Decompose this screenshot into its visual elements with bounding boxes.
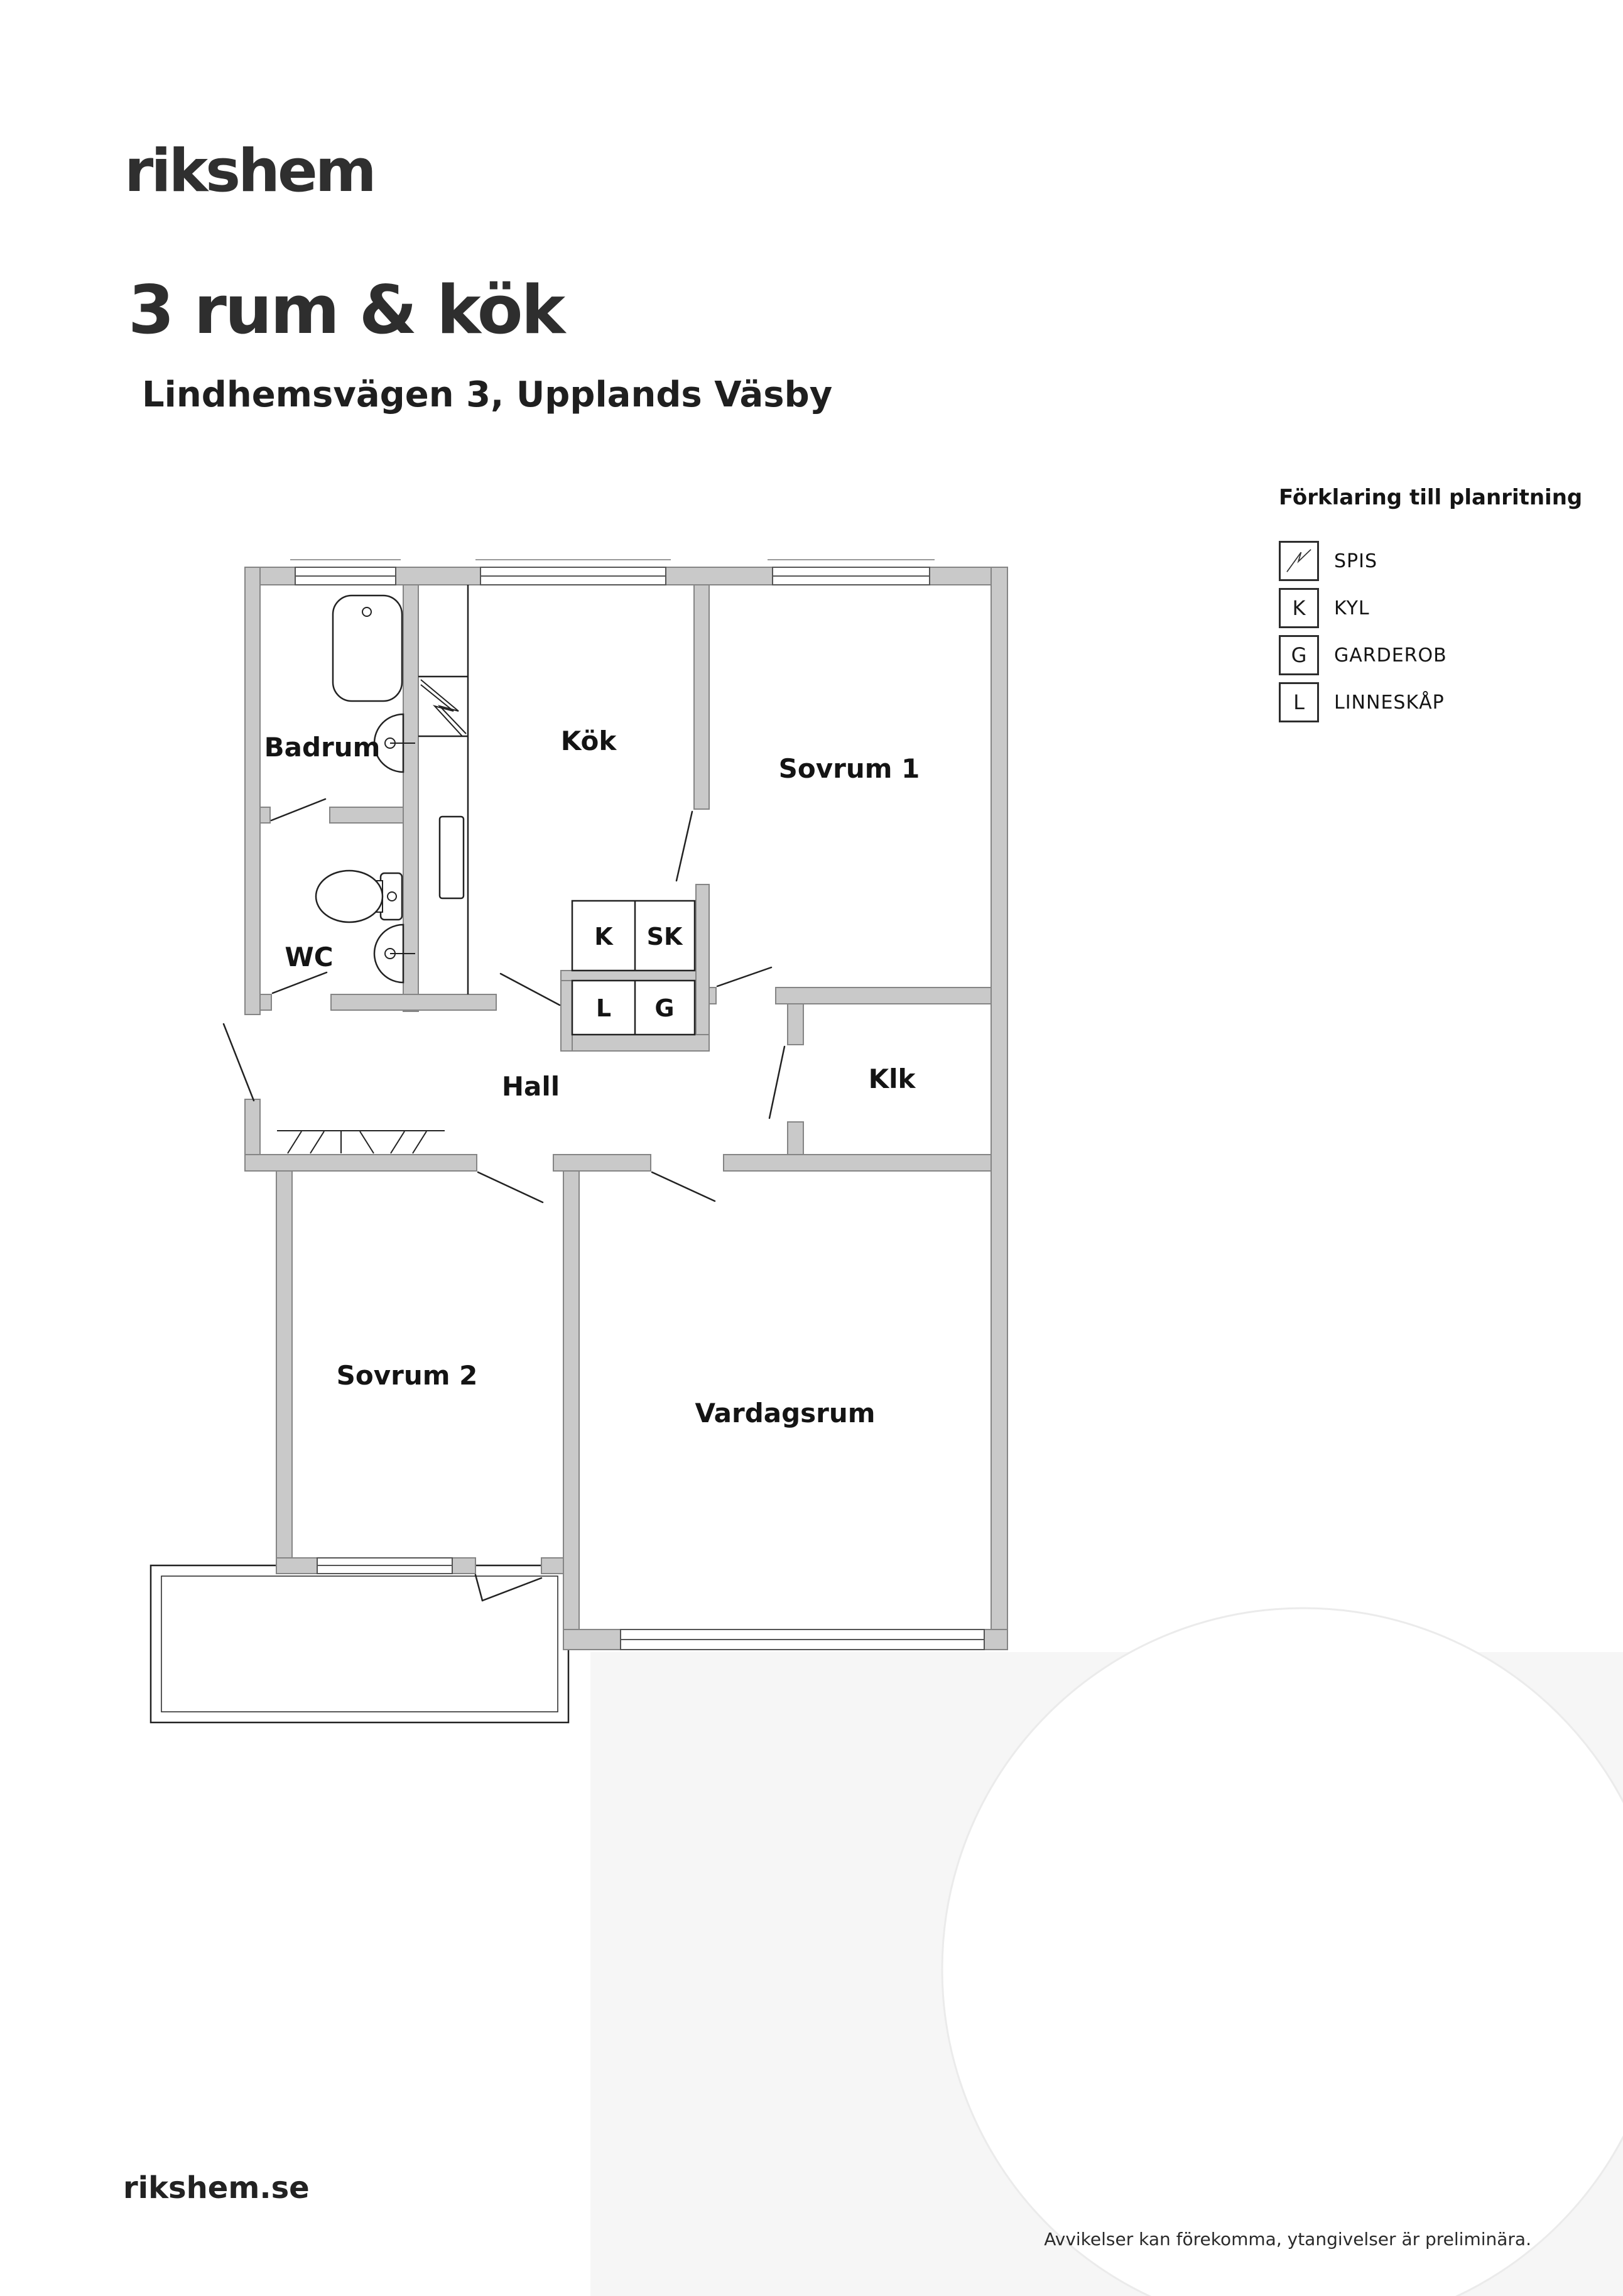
- legend-label-linneskap: LINNESKÅP: [1334, 692, 1445, 714]
- balcony: [151, 1565, 568, 1722]
- legend-row-kyl: K KYL: [1279, 589, 1605, 628]
- legend-letter-k: K: [1279, 588, 1319, 628]
- room-labels: Badrum WC Kök Sovrum 1 Hall Klk Sovrum 2…: [264, 726, 920, 1428]
- stair-hatch-line: [310, 1131, 324, 1153]
- stair-hatch-line: [288, 1131, 301, 1153]
- sovrum2-door-leaf: [478, 1172, 543, 1202]
- spis-zigzag-icon: [1283, 545, 1315, 577]
- legend-label-kyl: KYL: [1334, 597, 1370, 619]
- legend-row-linneskap: L LINNESKÅP: [1279, 683, 1605, 722]
- wall-segment: [776, 987, 991, 1004]
- wall-segment: [788, 1004, 803, 1045]
- legend-label-spis: SPIS: [1334, 550, 1377, 572]
- page-subtitle: Lindhemsvägen 3, Upplands Väsby: [142, 374, 832, 415]
- stove-symbol: [421, 680, 466, 736]
- background-wash: [590, 1608, 1623, 2296]
- wall-segment: [694, 585, 709, 809]
- stair-hatch-line: [391, 1131, 404, 1153]
- wall-segment: [245, 1155, 477, 1171]
- closet-label-k: K: [594, 923, 614, 950]
- wall-segment: [276, 1171, 292, 1574]
- vardagsrum-door-leaf: [652, 1172, 715, 1201]
- legend-letter-l: L: [1279, 682, 1319, 722]
- stair-hatch: [277, 1131, 445, 1153]
- floorplan-document-page: Badrum WC Kök Sovrum 1 Hall Klk Sovrum 2…: [0, 0, 1623, 2296]
- room-label-badrum: Badrum: [264, 732, 381, 763]
- bathtub: [333, 596, 402, 701]
- closet-label-g: G: [654, 994, 674, 1022]
- rikshem-logo: rikshem: [124, 137, 374, 205]
- wall-segment: [724, 1155, 991, 1171]
- closet-boxes: [572, 901, 695, 1035]
- sovrum1-hall-door-leaf: [717, 967, 771, 986]
- badrum-door-leaf: [271, 799, 325, 820]
- wall-segment: [396, 567, 480, 585]
- page-title: 3 rum & kök: [128, 271, 563, 349]
- fixtures: [277, 585, 468, 1153]
- wall-segment: [331, 994, 496, 1010]
- wall-segment: [245, 567, 260, 1015]
- wall-segment: [572, 1035, 709, 1051]
- legend-label-garderob: GARDEROB: [1334, 645, 1447, 666]
- kok-door-leaf: [501, 974, 560, 1005]
- website-footer: rikshem.se: [123, 2170, 310, 2206]
- kitchen-sink: [440, 817, 464, 898]
- wall-segment: [330, 807, 403, 823]
- wall-segment: [696, 884, 709, 1035]
- kitchen-counter: [418, 585, 468, 994]
- wall-segment: [563, 1630, 621, 1650]
- walls: [245, 567, 1007, 1650]
- wall-segment: [991, 567, 1007, 1650]
- closet-label-l: L: [596, 994, 611, 1022]
- wall-segment: [563, 1171, 579, 1650]
- wall-segment: [788, 1122, 803, 1155]
- wall-segment: [666, 567, 773, 585]
- wall-segment: [403, 585, 418, 1011]
- spis-icon: [1279, 541, 1319, 581]
- wall-segment: [276, 1558, 317, 1574]
- legend-row-spis: SPIS: [1279, 541, 1605, 580]
- closet-label-sk: SK: [647, 923, 683, 950]
- room-label-sovrum2: Sovrum 2: [337, 1360, 478, 1391]
- wall-segment: [260, 994, 271, 1010]
- wall-segment: [561, 971, 696, 981]
- legend-row-garderob: G GARDEROB: [1279, 636, 1605, 675]
- wall-segment: [260, 807, 270, 823]
- balcony-inner: [161, 1576, 558, 1712]
- toilet-bowl: [316, 871, 383, 922]
- wall-segment: [541, 1558, 563, 1574]
- room-label-wc: WC: [285, 942, 333, 972]
- closet-box-l-g: [572, 981, 695, 1035]
- room-label-kok: Kök: [561, 726, 617, 756]
- klk-door-leaf: [769, 1047, 784, 1118]
- stair-hatch-line: [360, 1131, 374, 1153]
- legend-letter-g: G: [1279, 635, 1319, 675]
- room-label-klk: Klk: [869, 1064, 916, 1094]
- wall-segment: [553, 1155, 651, 1171]
- room-label-hall: Hall: [502, 1071, 560, 1102]
- stove-zigzag: [421, 680, 466, 734]
- entrance-door-leaf: [224, 1024, 254, 1101]
- room-label-vardagsrum: Vardagsrum: [695, 1398, 875, 1428]
- wall-segment: [452, 1558, 475, 1574]
- sovrum1-kok-door-leaf: [676, 812, 692, 881]
- wall-segment: [561, 981, 572, 1051]
- wall-segment: [709, 987, 716, 1004]
- stair-hatch-line: [413, 1131, 426, 1153]
- disclaimer-text: Avvikelser kan förekomma, ytangivelser ä…: [1044, 2229, 1531, 2250]
- wall-segment: [984, 1630, 1007, 1650]
- room-label-sovrum1: Sovrum 1: [779, 753, 920, 784]
- toilet-tank: [381, 873, 402, 920]
- wc-door-leaf: [273, 972, 327, 993]
- legend: Förklaring till planritning SPIS K KYL G…: [1279, 485, 1605, 730]
- legend-title: Förklaring till planritning: [1279, 485, 1605, 510]
